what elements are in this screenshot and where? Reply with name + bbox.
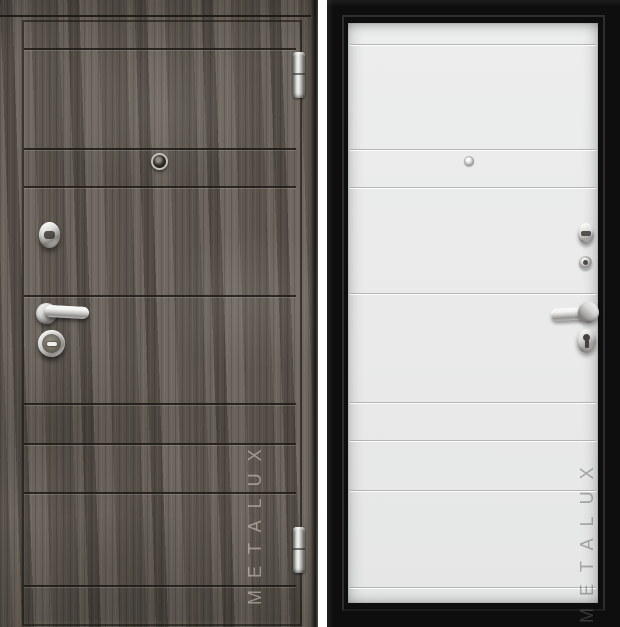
panel-groove — [350, 44, 596, 46]
lower-lock-cylinder — [38, 330, 65, 357]
lock-escutcheon — [579, 256, 592, 269]
panel-groove — [350, 587, 596, 589]
handle-rosette — [578, 302, 599, 323]
panel-groove — [350, 187, 596, 189]
thumbturn-knob — [581, 231, 591, 236]
lever-handle — [45, 305, 90, 319]
panel-groove — [350, 440, 596, 442]
white-door-leaf: METALUX — [348, 23, 598, 603]
frame-head-shade — [0, 0, 318, 15]
door-front-view: METALUX — [0, 0, 318, 627]
panel-groove — [350, 402, 596, 404]
door-edge-shadow — [309, 0, 318, 627]
panel-groove — [24, 48, 296, 51]
panel-groove — [350, 293, 596, 295]
keyhole-cover — [577, 329, 596, 353]
upper-lock-escutcheon — [39, 222, 60, 248]
night-latch-thumbturn — [578, 223, 594, 244]
keyhole-slot — [585, 340, 589, 348]
keyhole — [44, 231, 55, 239]
panel-groove — [24, 148, 296, 151]
panel-groove — [24, 186, 296, 189]
escutcheon-center — [583, 260, 588, 265]
hinge-top — [293, 52, 305, 98]
key-slot — [47, 342, 57, 346]
door-product-photo: METALUX — [0, 0, 620, 627]
panel-groove — [350, 490, 596, 492]
frame-leaf-junction-line — [0, 15, 311, 17]
hinge-bottom — [293, 527, 305, 573]
brand-watermark: METALUX — [245, 437, 266, 605]
peephole — [151, 153, 168, 170]
panel-groove — [24, 295, 296, 298]
door-back-view: METALUX — [327, 0, 620, 627]
brand-watermark: METALUX — [577, 455, 598, 623]
panel-groove — [350, 149, 596, 151]
hinge-seam — [293, 73, 305, 75]
panel-groove — [24, 403, 296, 406]
peephole-back — [464, 156, 474, 166]
hinge-seam — [293, 548, 305, 550]
